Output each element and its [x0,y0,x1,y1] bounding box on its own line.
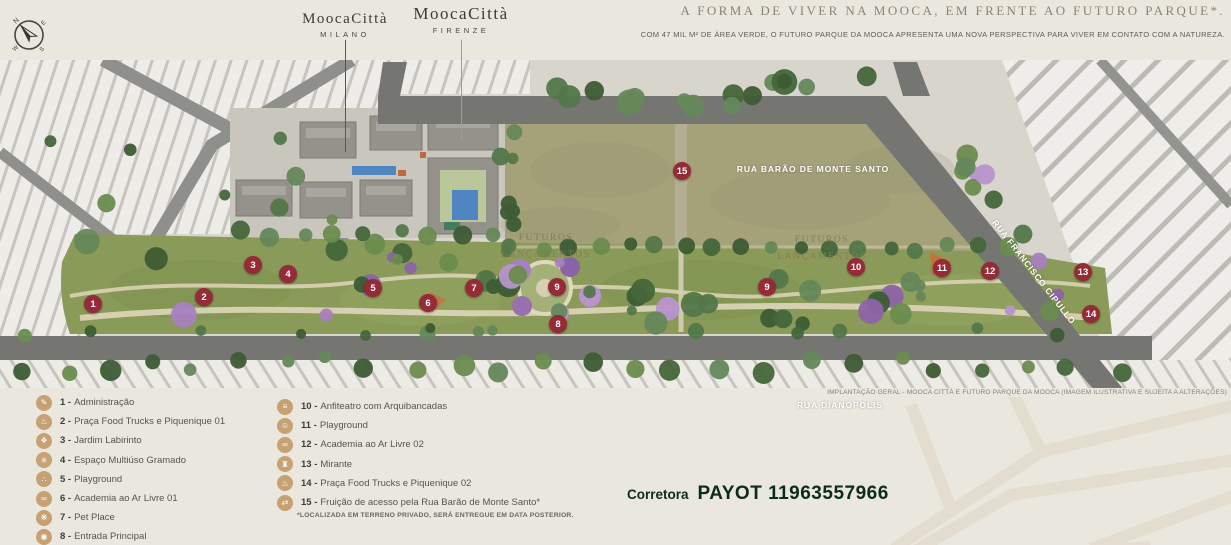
compass-icon: N E S W [6,12,52,58]
legend-item-number: 5 - [60,474,71,485]
legend-item: ∞12 -Academia ao Ar Livre 02 [277,435,540,454]
legend-item-label: Academia ao Ar Livre 02 [320,439,424,450]
future-lots-label: FUTUROS LANÇAMENTOS [486,230,606,264]
subheadline: COM 47 MIL M² DE ÁREA VERDE, O FUTURO PA… [641,30,1225,39]
legend-item-number: 4 - [60,455,71,466]
logo-mooca-citta-firenze: MoocaCittà FIRENZE [396,4,526,35]
legend-item: ◉8 -Entrada Principal [36,527,225,545]
legend-item-label: Espaço Multiúso Gramado [74,455,186,466]
dumbbell-icon: ∞ [277,437,293,453]
legend-item-label: Praça Food Trucks e Piquenique 01 [74,416,225,427]
legend-footnote: *LOCALIZADA EM TERRENO PRIVADO, SERÁ ENT… [297,512,574,519]
legend-item-number: 6 - [60,493,71,504]
legend-item-number: 3 - [60,435,71,446]
headline: A FORMA DE VIVER NA MOOCA, EM FRENTE AO … [681,3,1225,19]
legend-item-label: Administração [74,397,134,408]
future-lots-line2: LANÇAMENTOS [486,247,606,264]
playground-icon: ☺ [277,418,293,434]
legend-item-number: 11 - [301,420,317,431]
compass-e: E [41,20,48,27]
future-lots-label: FUTUROS LANÇAMENTOS [762,232,882,266]
legend-item-number: 13 - [301,459,317,470]
entrance-pin-icon: ◉ [36,529,52,545]
legend-item-label: Entrada Principal [74,531,146,542]
legend-item-number: 14 - [301,478,317,489]
future-lots-line2: LANÇAMENTOS [762,249,882,266]
legend-item-number: 15 - [301,497,317,508]
broker-name-number: PAYOT 11963557966 [698,483,889,505]
future-lots-line1: FUTUROS [486,230,606,247]
legend-item-number: 1 - [60,397,71,408]
legend-item: ✳4 -Espaço Multiúso Gramado [36,451,225,470]
legend-item-number: 2 - [60,416,71,427]
broker-prefix: Corretora [627,487,689,502]
legend-item-label: Jardim Labirinto [74,435,142,446]
multiuse-lawn-icon: ✳ [36,452,52,468]
legend-column-1: ✎1 -Administração♨2 -Praça Food Trucks e… [36,393,225,545]
logo-variant: FIRENZE [396,26,526,35]
compass-s: S [39,46,46,53]
logo-mooca-citta-milano: MoocaCittà MILANO [280,11,410,39]
street-label-rua-dianopolis: RUA DIANÓPOLIS [797,400,883,410]
legend-item: ✎1 -Administração [36,393,225,412]
logo-brand: MoocaCittà [396,4,526,24]
legend-item-label: Praça Food Trucks e Piquenique 02 [320,478,471,489]
maze-icon: ❖ [36,433,52,449]
legend-column-2: ≡10 -Anfiteatro com Arquibancadas☺11 -Pl… [277,397,540,512]
legend-item-label: Anfiteatro com Arquibancadas [320,401,447,412]
legend-item: ♨2 -Praça Food Trucks e Piquenique 01 [36,412,225,431]
legend-item: ≡10 -Anfiteatro com Arquibancadas [277,397,540,416]
legend-item: ☺11 -Playground [277,416,540,435]
site-plan-map: RUA BARÃO DE MONTE SANTO RUA FRANCISCO C… [0,60,1231,388]
legend-item-number: 8 - [60,531,71,542]
street-label-rua-barao-de-monte-santo: RUA BARÃO DE MONTE SANTO [737,164,889,174]
leaf-pattern-decoration [891,397,1231,545]
legend-item: ♨14 -Praça Food Trucks e Piquenique 02 [277,474,540,493]
amphitheater-icon: ≡ [277,399,293,415]
legend-item: ∞6 -Academia ao Ar Livre 01 [36,489,225,508]
legend-item-number: 12 - [301,439,317,450]
broker-watermark: Corretora PAYOT 11963557966 [627,483,889,505]
playground-icon: ∴ [36,471,52,487]
poster: N E S W MoocaCittà MILANO MoocaCittà FIR… [0,0,1231,545]
legend-item-label: Fruição de acesso pela Rua Barão de Mont… [320,497,540,508]
legend-item-label: Mirante [320,459,352,470]
dumbbell-icon: ∞ [36,491,52,507]
leader-line-firenze [461,40,462,140]
legend-item: ⇄15 -Fruição de acesso pela Rua Barão de… [277,493,540,512]
legend-item-label: Academia ao Ar Livre 01 [74,493,178,504]
legend-item: ❖3 -Jardim Labirinto [36,431,225,450]
legend-item: ∴5 -Playground [36,470,225,489]
future-lots-line1: FUTUROS [762,232,882,249]
logo-variant: MILANO [280,30,410,39]
legend-item: ♜13 -Mirante [277,455,540,474]
pet-paw-icon: ❋ [36,510,52,526]
legend-item: ❋7 -Pet Place [36,508,225,527]
access-arrows-icon: ⇄ [277,495,293,511]
legend-item-label: Playground [320,420,368,431]
legend-item-number: 10 - [301,401,317,412]
food-truck-icon: ♨ [36,414,52,430]
lookout-tower-icon: ♜ [277,456,293,472]
legend-item-label: Playground [74,474,122,485]
food-truck-icon: ♨ [277,475,293,491]
clipboard-icon: ✎ [36,395,52,411]
logo-brand: MoocaCittà [280,11,410,28]
legend-item-label: Pet Place [74,512,115,523]
leader-line-milano [345,40,346,152]
legend-item-number: 7 - [60,512,71,523]
map-caption: IMPLANTAÇÃO GERAL - MOOCA CITTÀ E FUTURO… [827,389,1227,396]
